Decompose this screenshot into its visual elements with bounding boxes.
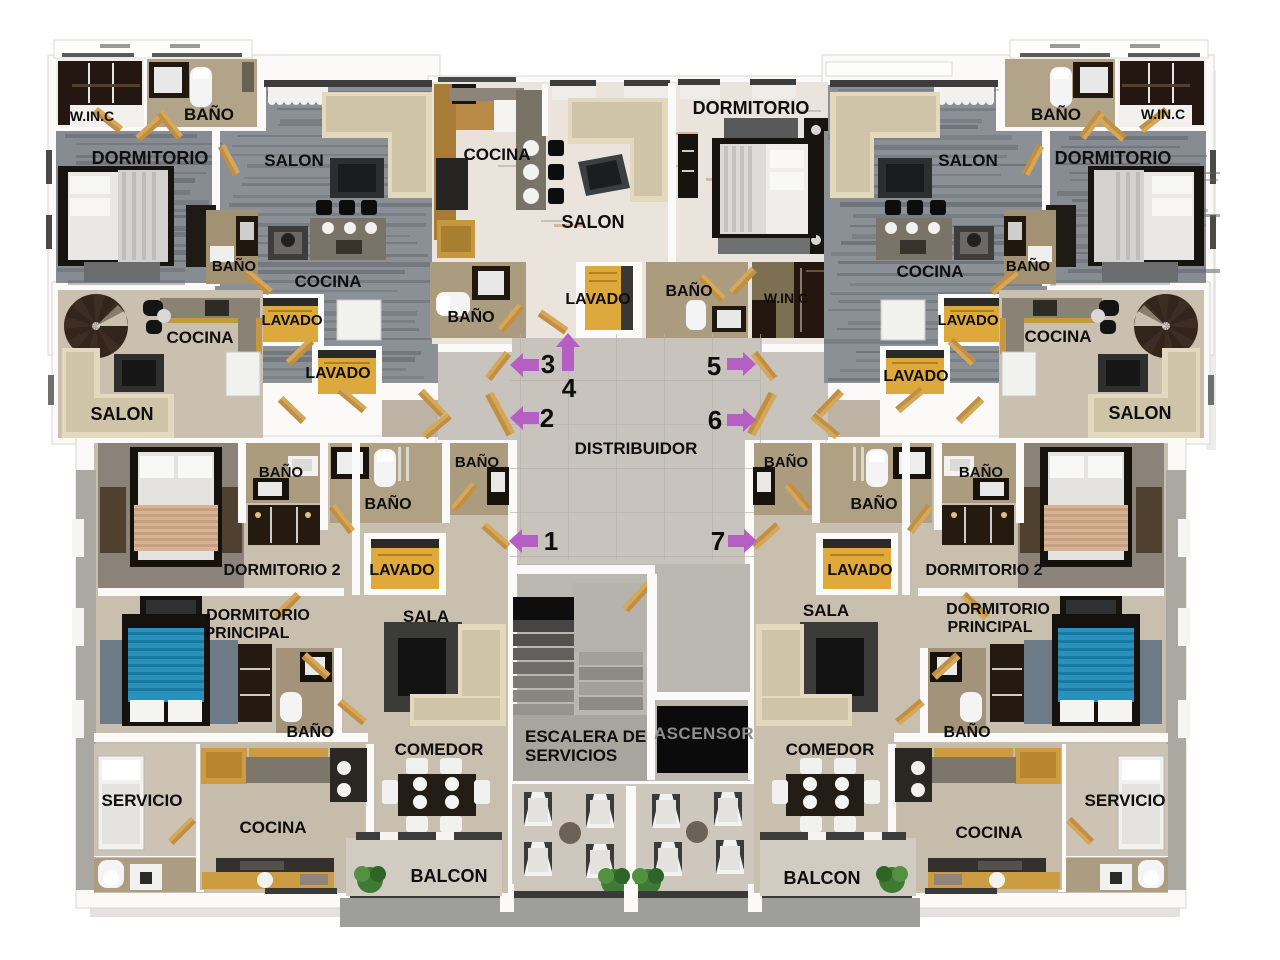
svg-text:LAVADO: LAVADO	[305, 365, 370, 382]
svg-text:COCINA: COCINA	[955, 823, 1022, 842]
svg-text:COCINA: COCINA	[896, 262, 963, 281]
svg-text:DORMITORIO: DORMITORIO	[1055, 148, 1172, 168]
svg-text:BAÑO: BAÑO	[455, 453, 499, 471]
svg-text:3: 3	[541, 349, 555, 379]
svg-text:BAÑO: BAÑO	[665, 280, 712, 300]
svg-text:DORMITORIO 2: DORMITORIO 2	[223, 562, 340, 579]
svg-text:COMEDOR: COMEDOR	[395, 740, 484, 759]
svg-text:SALON: SALON	[91, 404, 154, 424]
svg-text:LAVADO: LAVADO	[261, 312, 322, 329]
svg-text:DORMITORIO 2: DORMITORIO 2	[925, 562, 1042, 579]
svg-text:SALA: SALA	[803, 601, 849, 620]
svg-text:DORMITORIO: DORMITORIO	[946, 601, 1050, 618]
svg-text:BAÑO: BAÑO	[850, 493, 897, 513]
svg-text:W.IN.C: W.IN.C	[1141, 106, 1185, 122]
svg-text:COMEDOR: COMEDOR	[786, 740, 875, 759]
svg-text:7: 7	[711, 526, 725, 556]
svg-text:DORMITORIO: DORMITORIO	[206, 607, 310, 624]
svg-text:DORMITORIO: DORMITORIO	[92, 148, 209, 168]
svg-text:LAVADO: LAVADO	[827, 562, 892, 579]
svg-text:W.IN.C: W.IN.C	[70, 108, 114, 124]
svg-text:COCINA: COCINA	[166, 328, 233, 347]
svg-text:SALON: SALON	[264, 151, 324, 170]
svg-text:COCINA: COCINA	[294, 272, 361, 291]
svg-text:DORMITORIO: DORMITORIO	[693, 98, 810, 118]
svg-text:BAÑO: BAÑO	[364, 493, 411, 513]
svg-text:W.IN C: W.IN C	[764, 290, 808, 306]
svg-text:BAÑO: BAÑO	[1006, 257, 1050, 275]
svg-text:6: 6	[708, 405, 722, 435]
svg-text:LAVADO: LAVADO	[937, 312, 998, 329]
svg-text:BAÑO: BAÑO	[447, 306, 494, 326]
svg-text:COCINA: COCINA	[1024, 327, 1091, 346]
svg-text:PRINCIPAL: PRINCIPAL	[947, 619, 1032, 636]
svg-text:SERVICIOS: SERVICIOS	[525, 746, 617, 765]
svg-text:BAÑO: BAÑO	[764, 453, 808, 471]
svg-text:BAÑO: BAÑO	[286, 721, 333, 741]
svg-text:SERVICIO: SERVICIO	[102, 791, 183, 810]
svg-text:1: 1	[544, 526, 558, 556]
svg-text:5: 5	[707, 351, 721, 381]
svg-text:LAVADO: LAVADO	[369, 562, 434, 579]
svg-text:DISTRIBUIDOR: DISTRIBUIDOR	[575, 439, 698, 458]
svg-text:2: 2	[540, 403, 554, 433]
svg-text:4: 4	[562, 373, 577, 403]
svg-text:SALON: SALON	[938, 151, 998, 170]
svg-text:BALCON: BALCON	[784, 868, 861, 888]
svg-text:BAÑO: BAÑO	[959, 463, 1003, 481]
svg-text:BALCON: BALCON	[411, 866, 488, 886]
svg-text:SERVICIO: SERVICIO	[1085, 791, 1166, 810]
svg-text:BAÑO: BAÑO	[1031, 104, 1081, 124]
svg-text:BAÑO: BAÑO	[212, 257, 256, 275]
svg-text:BAÑO: BAÑO	[184, 104, 234, 124]
svg-text:SALON: SALON	[562, 212, 625, 232]
svg-text:LAVADO: LAVADO	[883, 368, 948, 385]
svg-text:BAÑO: BAÑO	[943, 721, 990, 741]
svg-text:BAÑO: BAÑO	[259, 463, 303, 481]
svg-text:SALA: SALA	[403, 607, 449, 626]
svg-text:PRINCIPAL: PRINCIPAL	[204, 625, 289, 642]
svg-text:LAVADO: LAVADO	[565, 291, 630, 308]
svg-text:COCINA: COCINA	[463, 145, 530, 164]
svg-text:ESCALERA DE: ESCALERA DE	[525, 727, 646, 746]
svg-text:SALON: SALON	[1109, 403, 1172, 423]
svg-text:COCINA: COCINA	[239, 818, 306, 837]
svg-text:ASCENSOR: ASCENSOR	[654, 724, 754, 743]
